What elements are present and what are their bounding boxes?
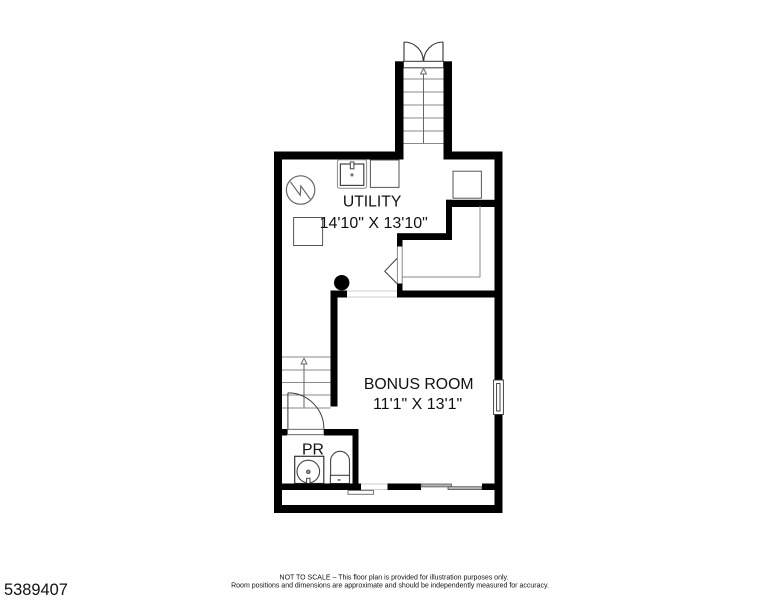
svg-text:BONUS ROOM: BONUS ROOM — [364, 376, 474, 393]
svg-text:14'10" X 13'10": 14'10" X 13'10" — [320, 215, 428, 232]
svg-text:UTILITY: UTILITY — [343, 193, 402, 210]
svg-text:5389407: 5389407 — [4, 581, 68, 599]
svg-text:NOT TO SCALE – This floor plan: NOT TO SCALE – This floor plan is provid… — [280, 574, 509, 581]
svg-text:Room positions and dimensions: Room positions and dimensions are approx… — [231, 582, 549, 589]
svg-text:11'1" X 13'1": 11'1" X 13'1" — [373, 396, 462, 413]
